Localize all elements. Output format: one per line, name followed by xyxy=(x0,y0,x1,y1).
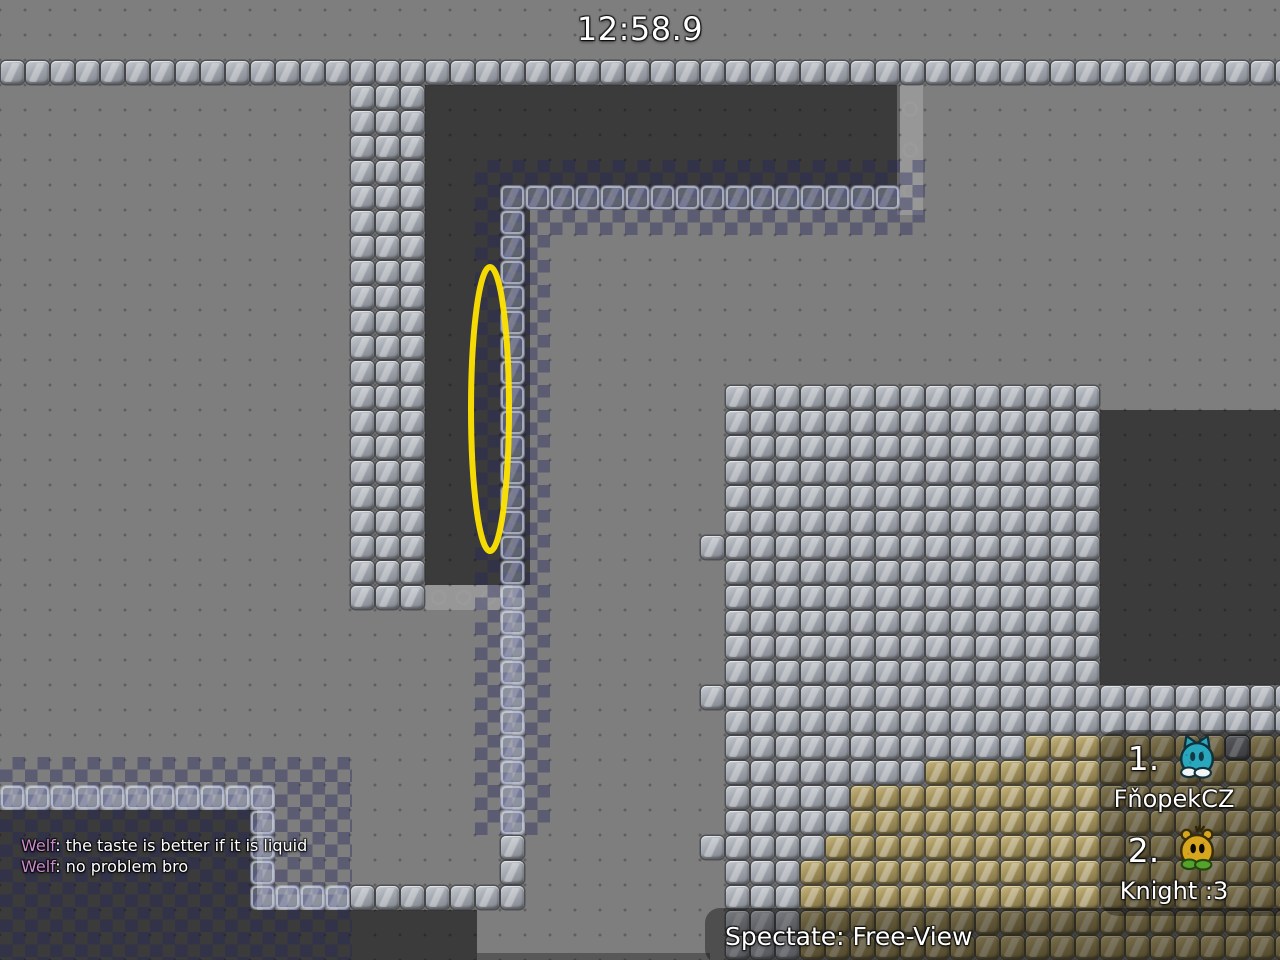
map-tile-metal xyxy=(1001,561,1024,584)
map-tile-glass xyxy=(526,186,549,209)
map-tile-metal xyxy=(1051,411,1074,434)
map-tile-metal xyxy=(351,261,374,284)
map-tile-tan xyxy=(1001,861,1024,884)
map-tile-metal xyxy=(901,636,924,659)
map-tile-metal xyxy=(751,511,774,534)
map-tile-metal xyxy=(1076,486,1099,509)
chat-author: Welf xyxy=(21,836,55,855)
map-tile-tan xyxy=(926,786,949,809)
map-tile-metal xyxy=(1051,461,1074,484)
map-tile-metal xyxy=(351,236,374,259)
map-tile-metal xyxy=(701,836,724,859)
map-tile-metal xyxy=(401,411,424,434)
map-tile-metal xyxy=(851,711,874,734)
map-tile-metal xyxy=(726,786,749,809)
map-tile-metal xyxy=(76,61,99,84)
map-tile-metal xyxy=(1051,711,1074,734)
map-tile-metal xyxy=(1001,536,1024,559)
map-tile-metal xyxy=(726,411,749,434)
map-tile-metal xyxy=(901,61,924,84)
map-tile-metal xyxy=(926,736,949,759)
map-tile-metal xyxy=(1276,61,1280,84)
map-tile-metal xyxy=(1051,436,1074,459)
map-tile-metal xyxy=(901,386,924,409)
map-tile-metal xyxy=(876,761,899,784)
map-tile-metal xyxy=(876,636,899,659)
map-tile-metal xyxy=(126,61,149,84)
map-tile-metal xyxy=(976,536,999,559)
map-tile-metal xyxy=(376,511,399,534)
map-tile-metal xyxy=(776,436,799,459)
map-tile-metal xyxy=(1126,686,1149,709)
map-tile-metal xyxy=(851,461,874,484)
map-tile-metal xyxy=(1001,486,1024,509)
map-tile-metal xyxy=(1001,711,1024,734)
map-tile-metal xyxy=(976,686,999,709)
map-tile-metal xyxy=(401,211,424,234)
map-tile-tan xyxy=(901,886,924,909)
map-tile-metal xyxy=(1076,711,1099,734)
map-tile-glass xyxy=(251,786,274,809)
map-tile-metal xyxy=(826,561,849,584)
map-tile-metal xyxy=(926,511,949,534)
map-tile-metal xyxy=(926,461,949,484)
spectate-bar: Spectate: Free-View xyxy=(705,908,1280,960)
map-tile-metal xyxy=(876,586,899,609)
map-tile-metal xyxy=(351,286,374,309)
map-tile-glass xyxy=(501,561,524,584)
map-tile-metal xyxy=(926,561,949,584)
map-tile-metal xyxy=(1001,411,1024,434)
map-tile-metal xyxy=(826,586,849,609)
map-tile-metal xyxy=(951,61,974,84)
map-tile-metal xyxy=(1076,636,1099,659)
map-tile-metal xyxy=(1001,436,1024,459)
map-tile-metal xyxy=(1076,61,1099,84)
map-tile-metal xyxy=(826,736,849,759)
map-tile-tan xyxy=(976,886,999,909)
map-tile-metal xyxy=(926,711,949,734)
map-tile-tan xyxy=(1001,761,1024,784)
map-tile-metal xyxy=(601,61,624,84)
map-tile-metal xyxy=(1076,686,1099,709)
map-tile-tan xyxy=(926,836,949,859)
map-tile-metal xyxy=(901,761,924,784)
map-tile-metal xyxy=(376,86,399,109)
map-tile-metal xyxy=(726,586,749,609)
map-tile-metal xyxy=(1051,511,1074,534)
map-tile-tan xyxy=(976,861,999,884)
map-tile-glass xyxy=(276,886,299,909)
map-tile-metal xyxy=(826,711,849,734)
map-tile-metal xyxy=(976,61,999,84)
map-tile-metal xyxy=(951,536,974,559)
map-tile-metal xyxy=(1076,511,1099,534)
map-tile-metal xyxy=(826,536,849,559)
map-tile-metal xyxy=(376,561,399,584)
map-tile-metal xyxy=(401,511,424,534)
map-tile-metal xyxy=(1026,636,1049,659)
map-tile-metal xyxy=(351,486,374,509)
map-tile-metal xyxy=(826,786,849,809)
map-tile-tan xyxy=(851,786,874,809)
chat-text: : the taste is better if it is liquid xyxy=(55,836,307,855)
map-tile-metal xyxy=(1026,686,1049,709)
map-tile-metal xyxy=(201,61,224,84)
map-tile-metal xyxy=(726,611,749,634)
map-tile-glass xyxy=(76,786,99,809)
map-tile-metal xyxy=(876,386,899,409)
map-tile-glass xyxy=(501,711,524,734)
map-tile-metal xyxy=(976,586,999,609)
map-tile-glass xyxy=(676,186,699,209)
map-tile-metal xyxy=(401,586,424,609)
map-tile-metal xyxy=(801,586,824,609)
map-tile-glass xyxy=(151,786,174,809)
map-tile-glass xyxy=(501,761,524,784)
map-tile-metal xyxy=(151,61,174,84)
map-tile-metal xyxy=(876,486,899,509)
map-tile-metal xyxy=(576,61,599,84)
map-tile-glass xyxy=(601,186,624,209)
map-tile-metal xyxy=(401,111,424,134)
map-tile-tan xyxy=(951,836,974,859)
map-tile-metal xyxy=(951,511,974,534)
map-tile-metal xyxy=(351,361,374,384)
map-tile-metal xyxy=(1051,386,1074,409)
scoreboard-entry: 1. FňopekCZ xyxy=(1100,734,1248,813)
map-tile-metal xyxy=(1026,61,1049,84)
map-tile-tan xyxy=(1051,861,1074,884)
map-tile-metal xyxy=(501,61,524,84)
map-tile-metal xyxy=(1001,736,1024,759)
map-tile-metal xyxy=(926,586,949,609)
map-tile-glass xyxy=(501,736,524,759)
map-tile-metal xyxy=(776,811,799,834)
map-tile-metal xyxy=(876,511,899,534)
map-tile-metal xyxy=(776,661,799,684)
map-tile-metal xyxy=(951,461,974,484)
map-tile-metal xyxy=(351,186,374,209)
map-tile-metal xyxy=(26,61,49,84)
map-tile-metal xyxy=(376,311,399,334)
map-tile-metal xyxy=(401,561,424,584)
map-tile-metal xyxy=(1051,586,1074,609)
map-tile-metal xyxy=(401,536,424,559)
map-tile-tan xyxy=(851,811,874,834)
map-tile-metal xyxy=(926,686,949,709)
map-tile-tan xyxy=(1051,836,1074,859)
map-tile-glass xyxy=(501,611,524,634)
player-name: Knight :3 xyxy=(1100,877,1248,905)
map-tile-metal xyxy=(1151,686,1174,709)
map-tile-metal xyxy=(451,886,474,909)
map-tile-metal xyxy=(901,411,924,434)
map-tile-glass xyxy=(501,211,524,234)
map-tile-tan xyxy=(951,761,974,784)
map-tile-metal xyxy=(1226,61,1249,84)
map-tile-metal xyxy=(1001,386,1024,409)
map-tile-metal xyxy=(801,511,824,534)
map-tile-glass xyxy=(701,186,724,209)
map-tile-metal xyxy=(1051,686,1074,709)
map-tile-metal xyxy=(1051,486,1074,509)
map-tile-tan xyxy=(1076,861,1099,884)
map-tile-metal xyxy=(1076,436,1099,459)
map-tile-metal xyxy=(651,61,674,84)
map-tile-metal xyxy=(776,61,799,84)
tee-avatar-gold-bear-icon xyxy=(1174,825,1220,875)
map-tile-metal xyxy=(901,736,924,759)
map-layer xyxy=(0,0,1280,960)
map-tile-tan xyxy=(926,811,949,834)
map-tile-metal xyxy=(476,61,499,84)
map-tile-metal xyxy=(1201,61,1224,84)
map-tile-metal xyxy=(751,786,774,809)
map-tile-metal xyxy=(776,461,799,484)
map-tile-metal xyxy=(1176,61,1199,84)
map-tile-tan xyxy=(1026,761,1049,784)
map-tile-metal xyxy=(1176,686,1199,709)
map-tile-metal xyxy=(351,386,374,409)
map-tile-metal xyxy=(726,736,749,759)
map-tile-metal xyxy=(376,111,399,134)
map-tile-metal xyxy=(376,211,399,234)
map-tile-metal xyxy=(801,561,824,584)
map-tile-tan xyxy=(1026,861,1049,884)
spectate-label: Spectate: Free-View xyxy=(725,922,972,951)
tee-avatar-cyan-cat-icon xyxy=(1174,733,1220,783)
map-tile-tan xyxy=(901,786,924,809)
map-tile-tan xyxy=(1026,836,1049,859)
map-tile-metal xyxy=(901,611,924,634)
map-tile-metal xyxy=(351,86,374,109)
map-tile-tan xyxy=(1001,811,1024,834)
map-tile-tan xyxy=(1051,811,1074,834)
map-tile-tan xyxy=(851,836,874,859)
map-tile-glass xyxy=(326,886,349,909)
map-tile-metal xyxy=(801,661,824,684)
map-tile-metal xyxy=(901,511,924,534)
map-tile-metal xyxy=(901,436,924,459)
map-tile-metal xyxy=(351,586,374,609)
map-tile-metal xyxy=(301,61,324,84)
map-tile-metal xyxy=(851,761,874,784)
map-tile-glass xyxy=(751,186,774,209)
scoreboard-panel: 1. FňopekCZ xyxy=(1100,730,1280,916)
map-tile-metal xyxy=(376,61,399,84)
map-tile-metal xyxy=(1001,586,1024,609)
map-tile-tan xyxy=(1076,836,1099,859)
map-tile-tan xyxy=(901,861,924,884)
map-tile-metal xyxy=(901,536,924,559)
map-tile-metal xyxy=(751,536,774,559)
map-tile-metal xyxy=(751,411,774,434)
map-tile-metal xyxy=(701,61,724,84)
map-tile-metal xyxy=(901,661,924,684)
map-tile-metal xyxy=(751,561,774,584)
map-tile-glass xyxy=(501,811,524,834)
map-tile-metal xyxy=(401,436,424,459)
map-tile-metal xyxy=(726,886,749,909)
map-tile-metal xyxy=(851,61,874,84)
map-tile-metal xyxy=(951,711,974,734)
map-tile-metal xyxy=(1076,411,1099,434)
rank-label: 1. xyxy=(1128,739,1160,778)
map-tile-metal xyxy=(251,61,274,84)
map-tile-tan xyxy=(976,786,999,809)
map-tile-metal xyxy=(401,886,424,909)
map-tile-glass xyxy=(101,786,124,809)
map-tile-metal xyxy=(801,611,824,634)
map-tile-metal xyxy=(851,736,874,759)
map-tile-metal xyxy=(776,636,799,659)
map-tile-metal xyxy=(401,161,424,184)
map-tile-metal xyxy=(801,836,824,859)
map-tile-metal xyxy=(526,61,549,84)
scoreboard-entry: 2. Knight :3 xyxy=(1100,826,1248,905)
chat-author: Welf xyxy=(21,857,55,876)
map-tile-metal xyxy=(1076,536,1099,559)
map-tile-metal xyxy=(801,461,824,484)
map-tile-metal xyxy=(926,661,949,684)
map-tile-metal xyxy=(751,486,774,509)
map-tile-tan xyxy=(951,861,974,884)
map-tile-tan xyxy=(1076,886,1099,909)
map-tile-glass xyxy=(876,186,899,209)
map-tile-metal xyxy=(426,886,449,909)
map-tile-tan xyxy=(926,861,949,884)
map-tile-metal xyxy=(726,511,749,534)
map-tile-tan xyxy=(801,886,824,909)
map-tile-metal xyxy=(726,861,749,884)
map-tile-metal xyxy=(876,661,899,684)
map-tile-metal xyxy=(801,436,824,459)
map-tile-tan xyxy=(901,811,924,834)
map-tile-metal xyxy=(1076,611,1099,634)
map-tile-metal xyxy=(751,736,774,759)
map-tile-metal xyxy=(351,311,374,334)
map-tile-tan xyxy=(876,811,899,834)
map-tile-metal xyxy=(351,461,374,484)
map-tile-metal xyxy=(276,61,299,84)
map-tile-metal xyxy=(376,336,399,359)
map-tile-metal xyxy=(376,586,399,609)
map-tile-metal xyxy=(1001,511,1024,534)
map-tile-glass xyxy=(301,886,324,909)
map-tile-metal xyxy=(726,461,749,484)
map-tile-metal xyxy=(826,636,849,659)
map-tile-tan xyxy=(826,861,849,884)
map-tile-glass xyxy=(501,186,524,209)
map-tile-metal xyxy=(1,61,24,84)
map-tile-metal xyxy=(951,386,974,409)
map-tile-metal xyxy=(926,411,949,434)
map-tile-metal xyxy=(401,336,424,359)
map-tile-metal xyxy=(876,436,899,459)
map-tile-tan xyxy=(1026,786,1049,809)
map-tile-tan xyxy=(1076,736,1099,759)
map-tile-metal xyxy=(976,561,999,584)
map-tile-tan xyxy=(1026,886,1049,909)
map-tile-metal xyxy=(926,486,949,509)
map-tile-glass xyxy=(576,186,599,209)
map-tile-metal xyxy=(901,561,924,584)
game-viewport[interactable]: 12:58.9 Welf: the taste is better if it … xyxy=(0,0,1280,960)
map-tile-metal xyxy=(901,711,924,734)
map-tile-metal xyxy=(751,761,774,784)
map-tile-metal xyxy=(401,61,424,84)
map-tile-metal xyxy=(376,436,399,459)
map-tile-metal xyxy=(401,286,424,309)
map-tile-metal xyxy=(351,511,374,534)
map-tile-metal xyxy=(726,636,749,659)
map-tile-metal xyxy=(376,361,399,384)
map-tile-metal xyxy=(776,586,799,609)
chat-message: Welf: no problem bro xyxy=(21,856,307,877)
chat-message: Welf: the taste is better if it is liqui… xyxy=(21,835,307,856)
map-tile-metal xyxy=(351,61,374,84)
race-timer: 12:58.9 xyxy=(0,10,1280,48)
map-tile-glass xyxy=(801,186,824,209)
map-tile-metal xyxy=(1076,461,1099,484)
map-tile-metal xyxy=(826,661,849,684)
map-tile-metal xyxy=(851,636,874,659)
map-tile-metal xyxy=(976,436,999,459)
map-tile-metal xyxy=(826,761,849,784)
map-tile-glass xyxy=(126,786,149,809)
map-tile-glass xyxy=(551,186,574,209)
map-tile-metal xyxy=(801,411,824,434)
map-tile-metal xyxy=(401,261,424,284)
map-tile-metal xyxy=(1001,611,1024,634)
map-tile-metal xyxy=(376,286,399,309)
map-tile-metal xyxy=(726,711,749,734)
map-tile-metal xyxy=(951,686,974,709)
map-tile-metal xyxy=(751,811,774,834)
map-tile-metal xyxy=(776,386,799,409)
map-tile-glass xyxy=(726,186,749,209)
map-tile-metal xyxy=(751,586,774,609)
map-tile-metal xyxy=(351,561,374,584)
map-tile-glass xyxy=(501,661,524,684)
map-tile-metal xyxy=(1076,561,1099,584)
map-tile-metal xyxy=(776,861,799,884)
map-tile-metal xyxy=(751,861,774,884)
map-tile-metal xyxy=(726,661,749,684)
map-tile-metal xyxy=(726,761,749,784)
map-tile-glass xyxy=(176,786,199,809)
map-tile-metal xyxy=(1051,61,1074,84)
map-tile-metal xyxy=(1026,436,1049,459)
map-tile-metal xyxy=(801,786,824,809)
map-tile-tan xyxy=(1051,886,1074,909)
chat-text: : no problem bro xyxy=(55,857,188,876)
map-tile-glass xyxy=(201,786,224,809)
map-tile-metal xyxy=(401,386,424,409)
map-tile-metal xyxy=(901,461,924,484)
map-tile-metal xyxy=(951,661,974,684)
map-tile-metal xyxy=(726,536,749,559)
map-tile-metal xyxy=(951,436,974,459)
map-tile-metal xyxy=(751,686,774,709)
map-tile-tan xyxy=(976,836,999,859)
map-tile-metal xyxy=(1051,661,1074,684)
map-tile-tan xyxy=(1026,736,1049,759)
map-tile-metal xyxy=(726,686,749,709)
map-tile-tan xyxy=(876,886,899,909)
map-tile-metal xyxy=(726,811,749,834)
